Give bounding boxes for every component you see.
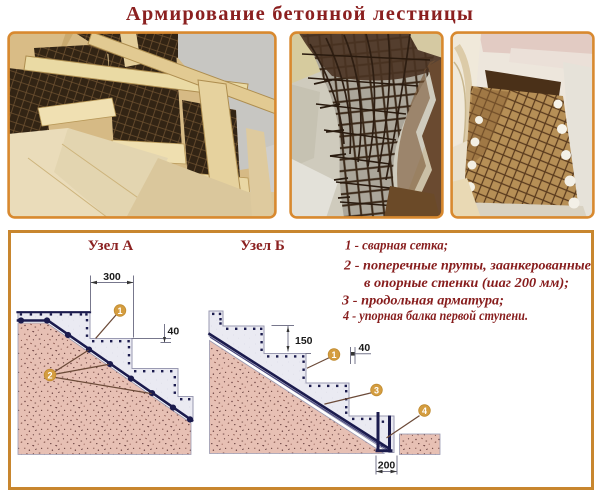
svg-text:40: 40 xyxy=(359,342,371,354)
svg-text:1 - сварная сетка;: 1 - сварная сетка; xyxy=(345,239,448,254)
svg-text:Армирование бетонной лестницы: Армирование бетонной лестницы xyxy=(126,3,474,25)
svg-text:1: 1 xyxy=(331,350,336,360)
svg-text:Узел Б: Узел Б xyxy=(240,238,285,254)
svg-text:в опорные стенки (шаг 200 мм);: в опорные стенки (шаг 200 мм); xyxy=(364,276,569,291)
svg-text:Узел А: Узел А xyxy=(88,238,134,254)
svg-text:150: 150 xyxy=(295,335,313,347)
svg-text:1: 1 xyxy=(117,306,122,316)
svg-text:4 - упорная балка первой ступе: 4 - упорная балка первой ступени. xyxy=(342,309,528,324)
svg-text:40: 40 xyxy=(168,326,180,338)
svg-text:2 - поперечные пруты, заанкеро: 2 - поперечные пруты, заанкерованные xyxy=(343,258,591,273)
svg-text:3 - продольная арматура;: 3 - продольная арматура; xyxy=(341,294,504,309)
svg-text:3: 3 xyxy=(374,386,379,396)
svg-text:300: 300 xyxy=(103,271,121,283)
svg-text:2: 2 xyxy=(47,371,52,381)
svg-text:200: 200 xyxy=(378,460,396,472)
svg-text:4: 4 xyxy=(422,406,427,416)
